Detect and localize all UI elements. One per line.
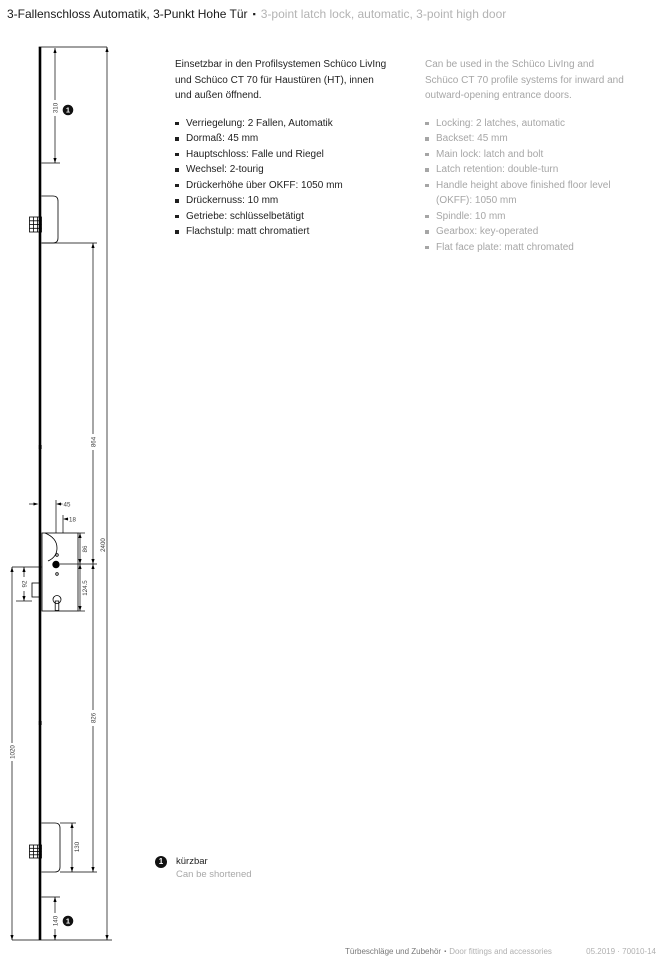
description-english: Can be used in the Schüco LivIng and Sch… [425,57,659,255]
list-item: Flat face plate: matt chromated [425,240,659,256]
face-plate [12,47,112,940]
technical-drawing: 310 864 826 1020 2400 92 86 124.5 130 14… [0,40,135,956]
svg-text:1: 1 [66,106,70,115]
lower-latch [30,823,61,872]
list-item: Latch retention: double-turn [425,162,659,178]
list-item: Drückerhöhe über OKFF: 1050 mm [175,178,415,194]
description-german: Einsetzbar in den Profilsystemen Schüco … [175,57,415,240]
footnote: 1 kürzbar Can be shortened [155,855,252,881]
feature-list-english: Locking: 2 latches, automatic Backset: 4… [425,116,659,256]
dim-86: 86 [82,545,89,552]
footer-reference: 05.2019 · 70010-14 [586,947,656,956]
page-title-english: 3-point latch lock, automatic, 3-point h… [261,7,506,21]
list-item: Wechsel: 2-tourig [175,162,415,178]
dim-45: 45 [64,502,71,509]
upper-latch [30,196,59,243]
dim-124-5: 124.5 [82,580,89,596]
dim-2400: 2400 [100,538,107,552]
footer-section-english: Door fittings and accessories [449,947,552,956]
list-item: Main lock: latch and bolt [425,147,659,163]
list-item: Dormaß: 45 mm [175,131,415,147]
footer-section: Türbeschläge und Zubehör▪Door fittings a… [345,947,552,956]
page-footer: Türbeschläge und Zubehör▪Door fittings a… [345,947,656,956]
cylinder-keyhole [55,601,59,611]
footer-separator-square-icon: ▪ [444,949,446,955]
svg-text:1: 1 [66,917,70,926]
list-item: Getriebe: schlüsselbetätigt [175,209,415,225]
dim-826: 826 [90,712,97,723]
list-item: Verriegelung: 2 Fallen, Automatik [175,116,415,132]
footnote-text-german: kürzbar [176,855,252,868]
list-item: Spindle: 10 mm [425,209,659,225]
dim-864: 864 [90,436,97,447]
catalog-page: 3-Fallenschloss Automatik, 3-Punkt Hohe … [0,0,666,956]
feature-list-german: Verriegelung: 2 Fallen, Automatik Dormaß… [175,116,415,240]
dimension-lines [12,47,107,940]
list-item: Hauptschloss: Falle und Riegel [175,147,415,163]
dim-310: 310 [52,102,59,113]
shorten-marker-top: 1 [63,105,74,116]
dim-1020: 1020 [9,745,16,759]
title-separator-square-icon: ▪ [253,9,256,19]
page-title: 3-Fallenschloss Automatik, 3-Punkt Hohe … [7,7,506,21]
list-item: Backset: 45 mm [425,131,659,147]
footnote-text-english: Can be shortened [176,868,252,881]
dim-18: 18 [69,517,76,524]
intro-english: Can be used in the Schüco LivIng and Sch… [425,57,659,104]
intro-german: Einsetzbar in den Profilsystemen Schüco … [175,57,415,104]
footer-section-german: Türbeschläge und Zubehör [345,947,441,956]
list-item: Handle height above finished floor level… [425,178,659,209]
shorten-marker-bottom: 1 [63,916,74,927]
list-item: Locking: 2 latches, automatic [425,116,659,132]
page-title-german: 3-Fallenschloss Automatik, 3-Punkt Hohe … [7,7,248,21]
dim-140: 140 [52,915,59,926]
list-item: Drückernuss: 10 mm [175,193,415,209]
dimension-arrows [10,47,108,940]
spindle-nut [52,561,59,568]
dim-92: 92 [21,580,28,587]
list-item: Gearbox: key-operated [425,224,659,240]
dim-130: 130 [74,841,81,852]
list-item: Flachstulp: matt chromatiert [175,224,415,240]
footnote-marker-icon: 1 [155,856,167,868]
